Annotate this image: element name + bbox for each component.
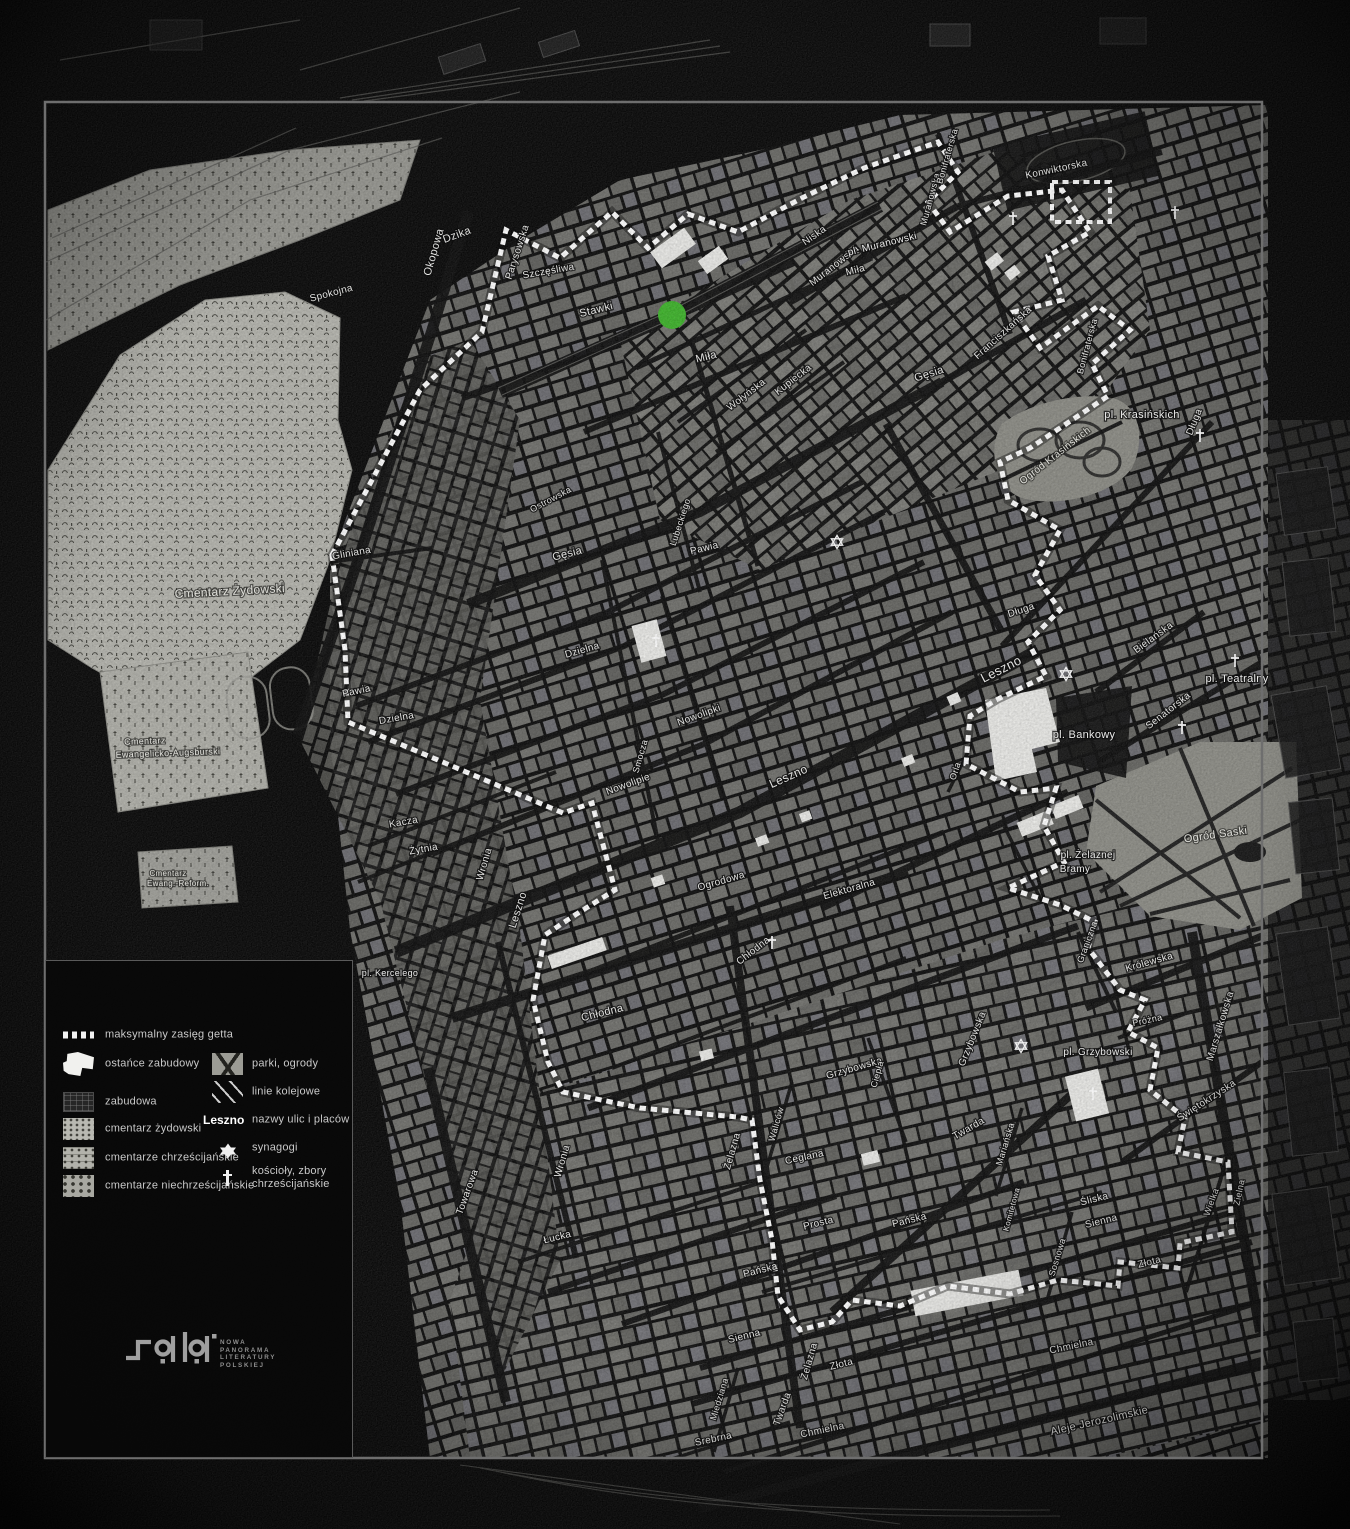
nazwy-ulic-swatch: Leszno — [203, 1113, 243, 1127]
legend-label: maksymalny zasięg getta — [105, 1028, 233, 1041]
legend-item-linie-kolejowe: linie kolejowe — [46, 1079, 352, 1105]
linie-kolejowe-swatch — [212, 1081, 243, 1103]
nplp-logo-glyphs — [122, 1326, 218, 1374]
koscioly-swatch — [212, 1170, 243, 1186]
legend-item-parki-ogrody: parki, ogrody — [46, 1051, 352, 1077]
synagogi-swatch — [212, 1142, 243, 1155]
legend-item-nazwy-ulic: Lesznonazwy ulic i placów — [46, 1107, 352, 1133]
legend: maksymalny zasięg gettaostańce zabudowyz… — [45, 960, 353, 1458]
legend-label: linie kolejowe — [252, 1085, 320, 1098]
legend-label: parki, ogrody — [252, 1057, 318, 1070]
logo-line: POLSKIEJ — [220, 1362, 276, 1370]
star-of-david-icon — [220, 1144, 236, 1155]
legend-item-ghetto-extent: maksymalny zasięg getta — [46, 1022, 352, 1048]
legend-item-koscioly: kościoły, zbory chrześcijańskie — [46, 1165, 352, 1191]
warsaw-ghetto-map-page: StawkiDzikaOkopowaParysowskaSzczęśliwaSp… — [0, 0, 1350, 1529]
cross-icon — [226, 1170, 229, 1186]
nplp-logo-block: NOWAPANORAMALITERATURYPOLSKIEJ — [122, 1326, 352, 1378]
legend-label: kościoły, zbory chrześcijańskie — [252, 1165, 330, 1191]
logo-line: NOWA — [220, 1339, 276, 1347]
logo-line: PANORAMA — [220, 1347, 276, 1355]
nplp-logo-text: NOWAPANORAMALITERATURYPOLSKIEJ — [220, 1339, 276, 1369]
logo-line: LITERATURY — [220, 1354, 276, 1362]
ghetto-extent-swatch — [63, 1032, 94, 1039]
legend-label: nazwy ulic i placów — [252, 1113, 349, 1126]
legend-label: synagogi — [252, 1141, 298, 1154]
legend-item-synagogi: synagogi — [46, 1135, 352, 1161]
parki-ogrody-swatch — [212, 1053, 243, 1075]
